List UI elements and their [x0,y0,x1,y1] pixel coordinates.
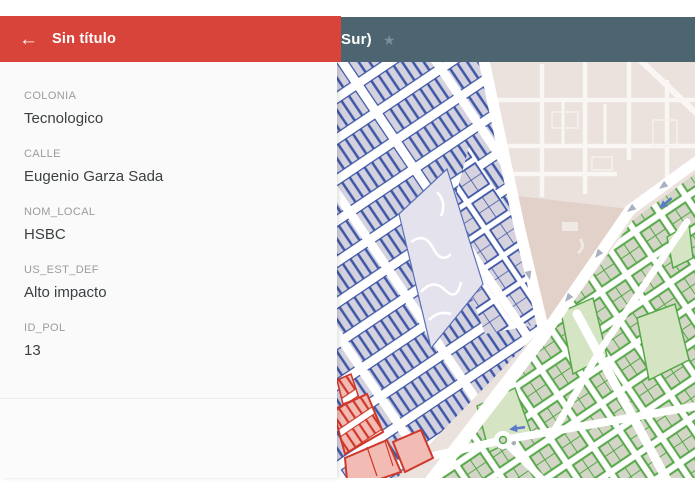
field-id-pol: ID_POL 13 [24,322,337,359]
map-title-text[interactable]: Sur) [341,31,372,48]
field-label: COLONIA [24,90,337,102]
field-value: HSBC [24,226,337,243]
field-colonia: COLONIA Tecnologico [24,90,337,127]
map-area[interactable] [337,62,695,478]
info-panel: COLONIA Tecnologico CALLE Eugenio Garza … [0,62,337,478]
info-panel-title: Sin título [52,31,116,47]
map-title-bar: Sur) ★ [330,17,695,62]
star-icon[interactable]: ★ [383,32,396,49]
info-panel-header: ← Sin título [0,16,341,62]
field-label: NOM_LOCAL [24,206,337,218]
map-canvas[interactable] [337,62,695,478]
panel-divider-section [0,398,337,478]
field-value: 13 [24,342,337,359]
field-value: Tecnologico [24,110,337,127]
attribute-list: COLONIA Tecnologico CALLE Eugenio Garza … [0,62,337,359]
field-nom-local: NOM_LOCAL HSBC [24,206,337,243]
field-value: Eugenio Garza Sada [24,168,337,185]
field-calle: CALLE Eugenio Garza Sada [24,148,337,185]
field-label: CALLE [24,148,337,160]
field-us-est-def: US_EST_DEF Alto impacto [24,264,337,301]
back-arrow-icon[interactable]: ← [19,30,38,49]
app-window: Sur) ★ ← Sin título COLONIA Tecnologico … [0,0,695,494]
field-label: US_EST_DEF [24,264,337,276]
field-label: ID_POL [24,322,337,334]
field-value: Alto impacto [24,284,337,301]
